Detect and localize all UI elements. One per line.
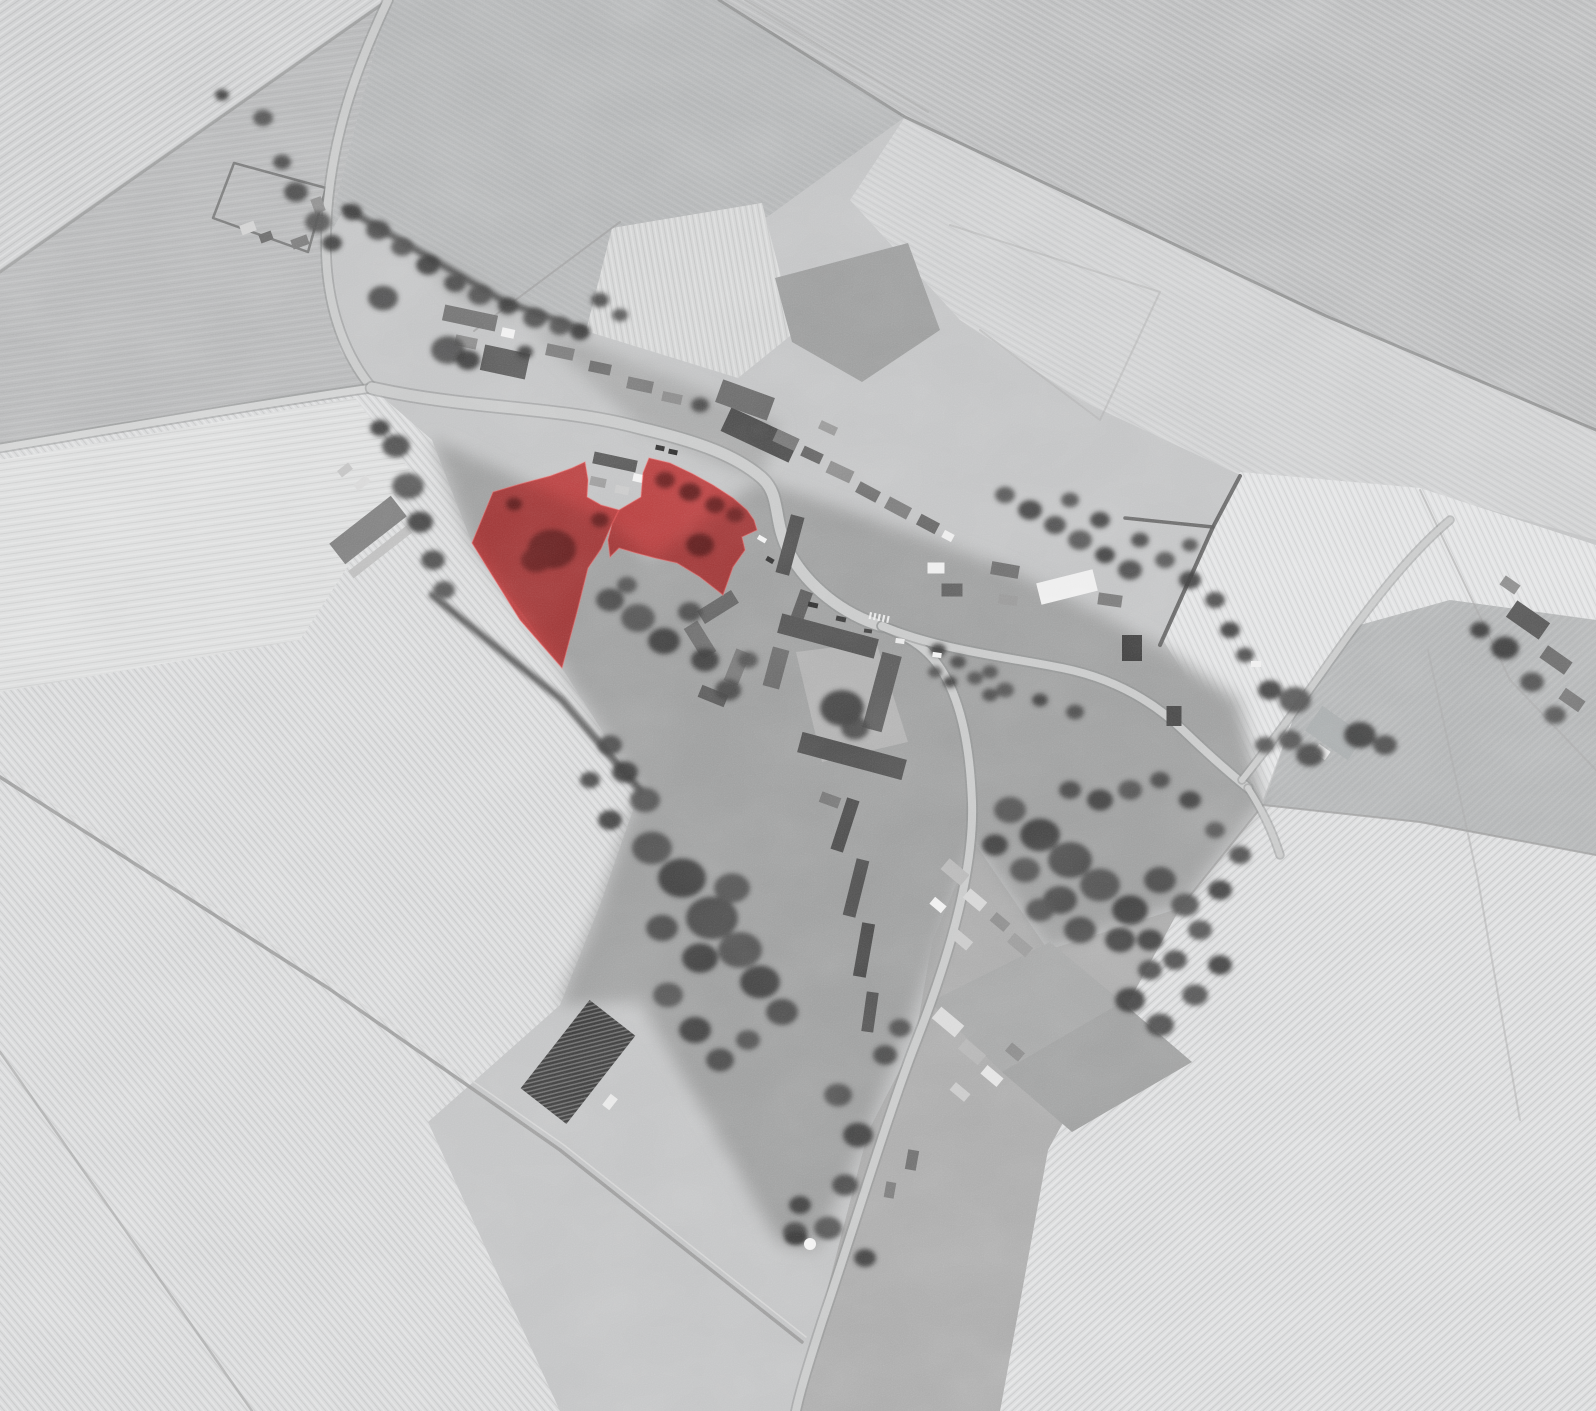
aerial-photo-svg [0, 0, 1596, 1411]
photo-grain [0, 0, 1596, 1411]
aerial-map-viewport[interactable] [0, 0, 1596, 1411]
